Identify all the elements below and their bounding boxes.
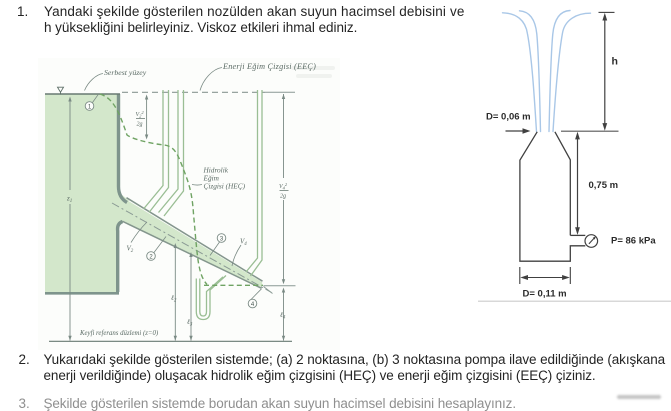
svg-text:2g: 2g [137,122,143,128]
svg-text:0,75 m: 0,75 m [589,180,619,191]
svg-text:P= 86 kPa: P= 86 kPa [611,236,656,247]
svg-text:2g: 2g [280,194,286,200]
svg-text:Keyfi referans düzlemi (z=0): Keyfi referans düzlemi (z=0) [79,330,159,337]
svg-text:D= 0,11 m: D= 0,11 m [523,288,567,299]
svg-text:D= 0,06 m: D= 0,06 m [486,111,531,122]
svg-text:Serbest yüzey: Serbest yüzey [104,68,147,77]
svg-text:Çizgisi (HEÇ): Çizgisi (HEÇ) [204,182,246,191]
svg-text:Enerji Eğim Çizgisi (EEÇ): Enerji Eğim Çizgisi (EEÇ) [222,62,316,71]
svg-text:h: h [612,56,618,68]
